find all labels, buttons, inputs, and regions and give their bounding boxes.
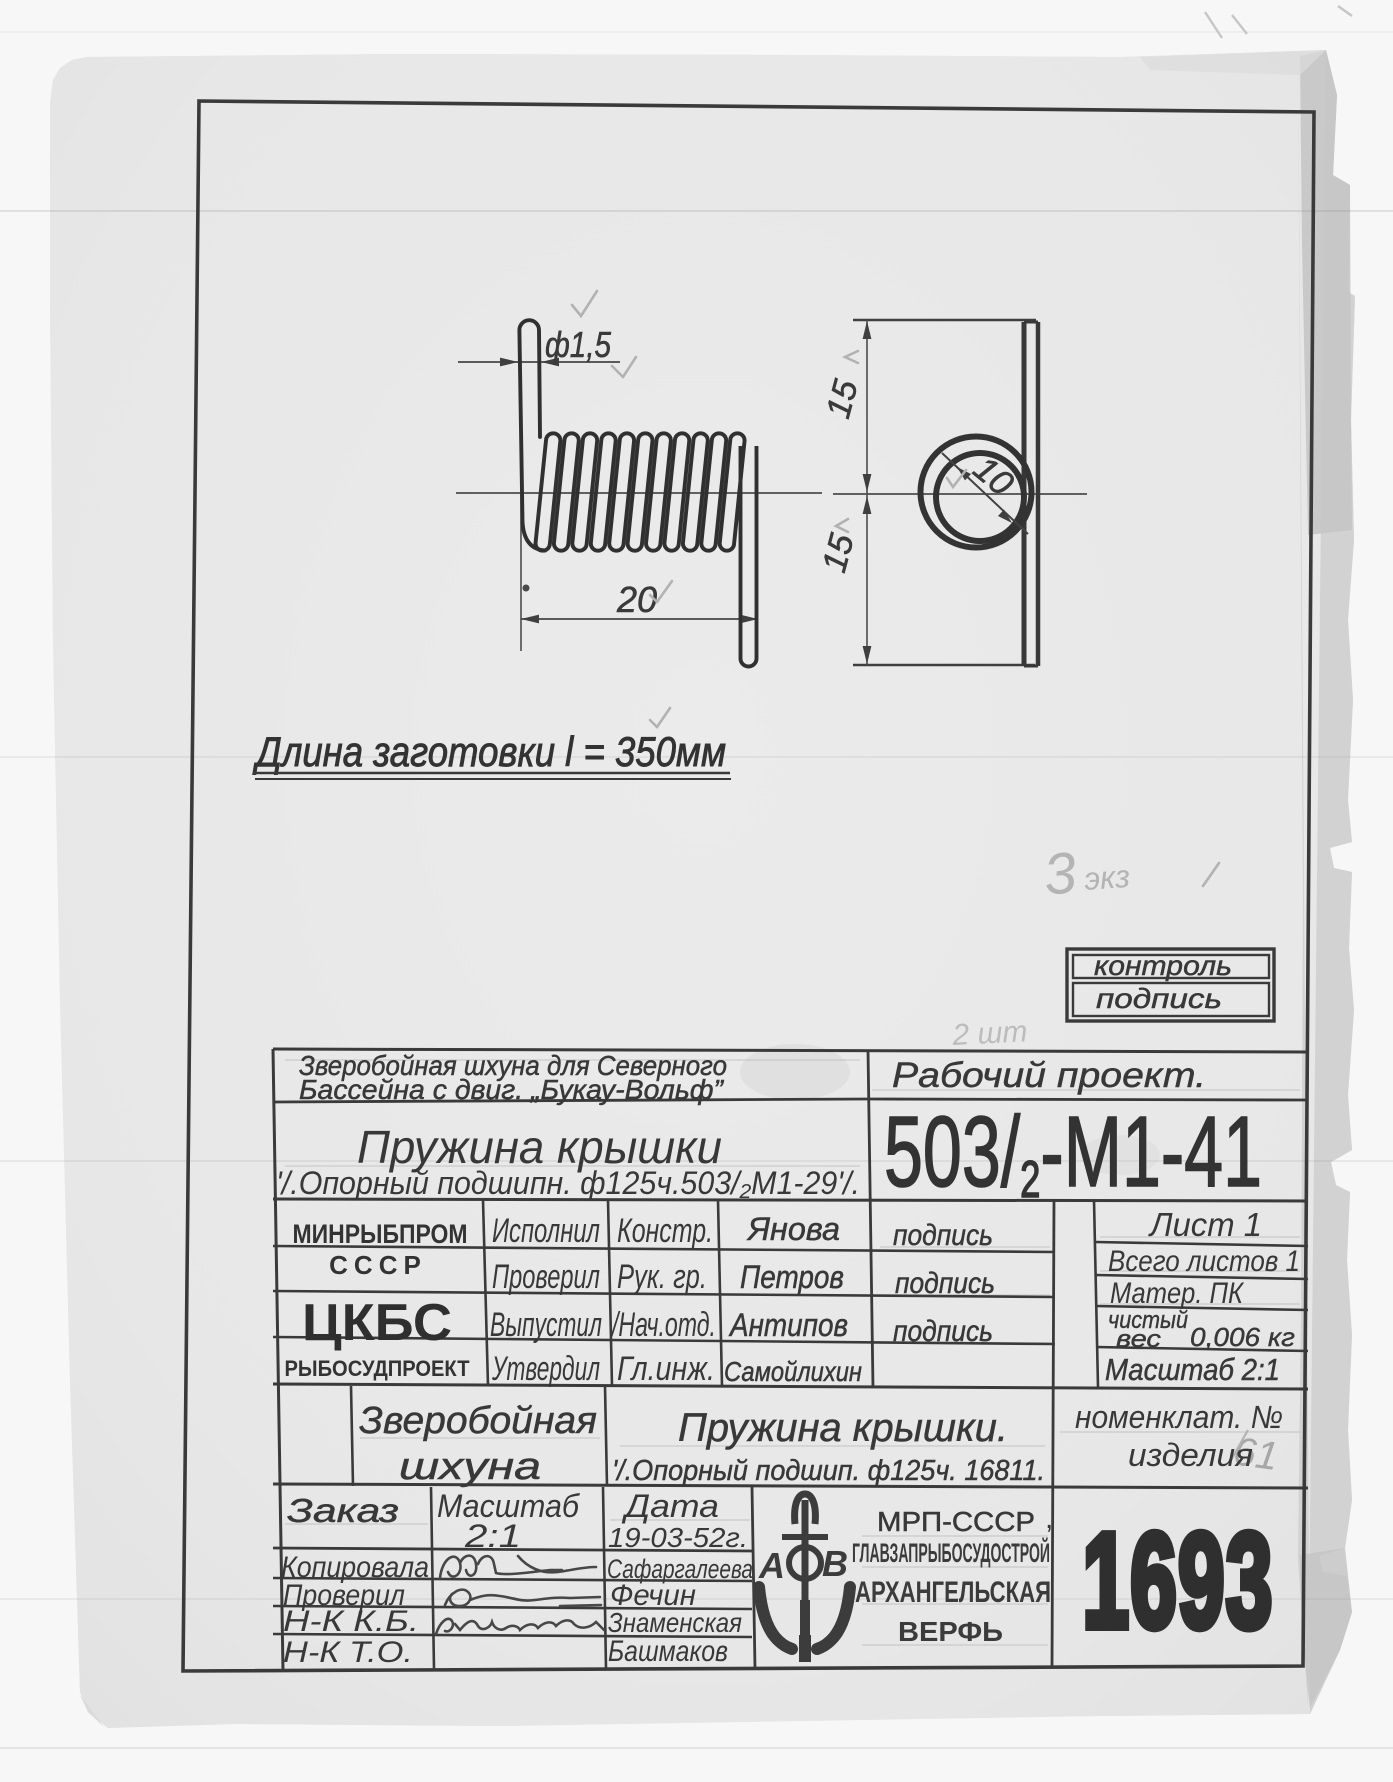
svg-text:Пружина крышки.: Пружина крышки.: [678, 1406, 1008, 1450]
svg-text:экз: экз: [1083, 858, 1131, 897]
svg-text:В: В: [822, 1543, 848, 1584]
svg-text:подпись: подпись: [1096, 983, 1222, 1014]
svg-text:,: ,: [1045, 1502, 1053, 1535]
svg-text:подпись: подпись: [893, 1315, 993, 1348]
svg-text:19-03-52г.: 19-03-52г.: [608, 1522, 748, 1553]
svg-text:Дата: Дата: [622, 1488, 719, 1524]
svg-text:МИНРЫБПРОМ: МИНРЫБПРОМ: [293, 1219, 468, 1249]
svg-text:20: 20: [616, 579, 657, 620]
svg-text:МРП-СССР: МРП-СССР: [877, 1506, 1035, 1537]
svg-text:3: 3: [1041, 840, 1080, 908]
svg-text:Самойлихин: Самойлихин: [724, 1356, 862, 1387]
svg-text:Янова: Янова: [746, 1211, 840, 1247]
svg-text:ЦКБС: ЦКБС: [302, 1294, 452, 1352]
svg-text:Утвердил: Утвердил: [491, 1350, 600, 1388]
svg-text:изделия: изделия: [1128, 1437, 1253, 1473]
svg-text:Проверил: Проверил: [492, 1258, 600, 1296]
svg-text:Н-К К.Б.: Н-К К.Б.: [283, 1605, 419, 1638]
svg-text:Знаменская: Знаменская: [608, 1607, 742, 1638]
svg-text:ф1,5: ф1,5: [545, 324, 612, 365]
svg-text:Выпустил: Выпустил: [490, 1306, 602, 1344]
svg-text:Бассейна с двиг. „Букау-Воль: Бассейна с двиг. „Букау-Вольф”: [299, 1074, 725, 1105]
svg-text:Антипов: Антипов: [728, 1307, 848, 1343]
svg-text:Констр.: Констр.: [617, 1212, 713, 1250]
svg-text:вес: вес: [1116, 1326, 1161, 1353]
svg-text:АРХАНГЕЛЬСКАЯ: АРХАНГЕЛЬСКАЯ: [855, 1576, 1051, 1609]
svg-text:подпись: подпись: [893, 1219, 993, 1252]
svg-text:контроль: контроль: [1094, 950, 1232, 981]
svg-text:Масштаб 2:1: Масштаб 2:1: [1105, 1352, 1280, 1387]
svg-text:ГЛАВЗАПРЫБОСУДОСТРОЙ: ГЛАВЗАПРЫБОСУДОСТРОЙ: [852, 1537, 1050, 1568]
svg-text:Петров: Петров: [740, 1259, 844, 1295]
svg-text:Рабочий проект.: Рабочий проект.: [892, 1056, 1206, 1095]
svg-text:/Нач.отд.: /Нач.отд.: [611, 1306, 716, 1344]
svg-text:ВЕРФЬ: ВЕРФЬ: [898, 1616, 1003, 1647]
svg-text:номенклат. №: номенклат. №: [1075, 1399, 1283, 1435]
svg-text:СССР: СССР: [329, 1250, 427, 1280]
svg-text:Всего листов 1: Всего листов 1: [1108, 1245, 1300, 1278]
svg-text:Н-К Т.О.: Н-К Т.О.: [283, 1636, 413, 1669]
svg-text:'/.Опорный подшипн. ф125ч.503: '/.Опорный подшипн. ф125ч.503/₂М1-29'/.: [276, 1165, 860, 1201]
svg-text:Длина заготовки l = 350мм: Длина заготовки l = 350мм: [253, 728, 726, 775]
svg-text:'/.Опорный подшип. ф125ч. 168: '/.Опорный подшип. ф125ч. 16811.: [612, 1455, 1045, 1487]
svg-text:А: А: [758, 1545, 785, 1586]
svg-text:Гл.инж.: Гл.инж.: [617, 1350, 715, 1388]
svg-text:Заказ: Заказ: [287, 1492, 399, 1529]
svg-text:подпись: подпись: [895, 1267, 995, 1300]
svg-text:Зверобойная: Зверобойная: [359, 1400, 597, 1442]
svg-text:1693: 1693: [1082, 1504, 1273, 1655]
svg-text:Исполнил: Исполнил: [492, 1212, 600, 1250]
svg-text:шхуна: шхуна: [399, 1446, 541, 1488]
svg-text:2:1: 2:1: [464, 1518, 521, 1554]
svg-text:Матер. ПК: Матер. ПК: [1110, 1277, 1245, 1310]
svg-text:0,006 кг: 0,006 кг: [1190, 1322, 1295, 1352]
svg-text:РЫБОСУДПРОЕКТ: РЫБОСУДПРОЕКТ: [285, 1356, 471, 1381]
svg-text:503/2-М1-41: 503/2-М1-41: [884, 1096, 1262, 1209]
svg-text:2 шт: 2 шт: [951, 1015, 1029, 1052]
svg-text:Лист 1: Лист 1: [1148, 1206, 1262, 1243]
svg-text:Башмаков: Башмаков: [608, 1635, 728, 1668]
svg-text:Рук. гр.: Рук. гр.: [617, 1258, 707, 1296]
